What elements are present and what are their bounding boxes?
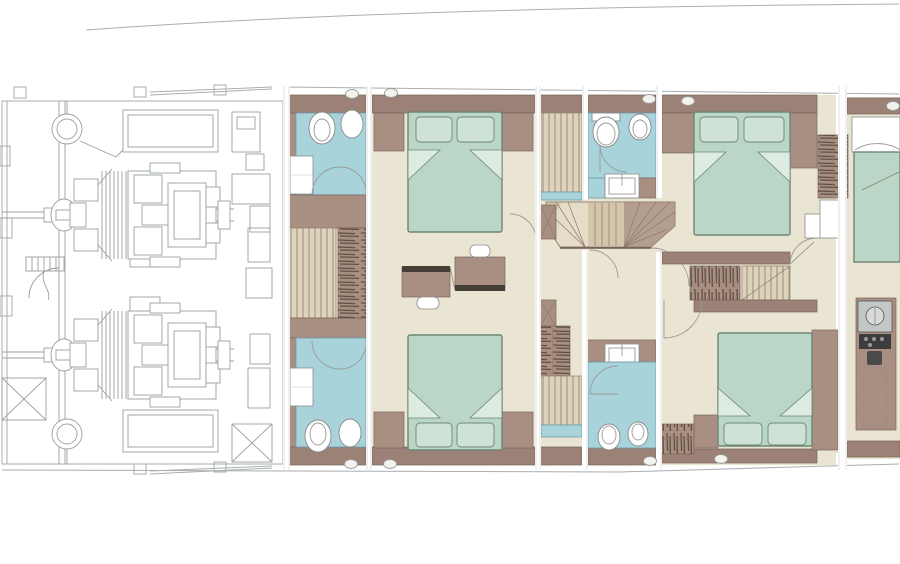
wardrobe [790, 113, 817, 168]
sink-basin [867, 351, 882, 365]
engine-starboard [2, 303, 234, 407]
hanging-wardrobe-vestibule [690, 266, 740, 300]
engine-room [2, 101, 272, 464]
porthole [384, 460, 397, 469]
bidet-icon [628, 422, 648, 446]
engine-port [2, 163, 234, 267]
nightstand [500, 412, 533, 448]
porthole [345, 460, 358, 469]
ladder [26, 257, 64, 300]
staircase-aft [742, 266, 790, 300]
galley-partial [856, 298, 896, 430]
porthole [346, 90, 359, 99]
yacht-lower-deck-plan [0, 0, 900, 564]
nightstand [374, 113, 404, 151]
toilet-icon [309, 112, 335, 144]
stove-icon [859, 334, 891, 349]
nightstand [694, 415, 718, 448]
double-bed-2 [694, 112, 790, 235]
cabin-4-fwd-wall [694, 300, 817, 312]
shower-1 [541, 113, 582, 200]
sink-icon [341, 110, 363, 138]
pillow [457, 423, 494, 447]
porthole [715, 455, 728, 464]
shower-2 [541, 376, 582, 437]
bathroom-3 [289, 338, 366, 452]
shaft [540, 205, 556, 239]
bidet-icon [629, 114, 651, 140]
double-bed-3 [408, 335, 502, 450]
floor-plan-canvas [0, 0, 900, 564]
porthole [385, 89, 398, 98]
water-heater-starboard [52, 419, 82, 464]
nightstand [374, 412, 404, 448]
toilet-icon [305, 420, 331, 452]
sink-icon [339, 419, 361, 447]
toilet-icon [592, 113, 620, 147]
pillow [724, 423, 762, 445]
pillow [700, 117, 738, 142]
stool [417, 297, 439, 309]
toilet-icon [598, 424, 620, 450]
bathroom-4 [587, 340, 656, 450]
pillow [457, 117, 494, 142]
cabin-5-partial [852, 117, 900, 262]
wardrobe [812, 330, 838, 450]
porthole [682, 97, 695, 106]
porthole [644, 457, 657, 466]
pillow [416, 423, 452, 447]
nightstand [662, 113, 694, 153]
fuel-tank-starboard [123, 410, 218, 452]
cabin-2-aft-wall [662, 252, 790, 264]
bathroom-1 [289, 110, 366, 228]
pillow [768, 423, 806, 445]
bathroom-2 [588, 113, 656, 198]
hanging-wardrobe-port [338, 228, 366, 318]
stern-platform [2, 378, 46, 420]
hanging-wardrobe-3 [660, 424, 694, 454]
double-bed-5 [854, 152, 900, 262]
double-bed-4 [718, 333, 812, 446]
double-bed-1 [408, 112, 502, 232]
pillow [744, 117, 784, 142]
stool [470, 245, 490, 257]
water-heater-port [52, 101, 123, 157]
fuel-tank-port [123, 110, 218, 152]
porthole [643, 95, 656, 104]
porthole [887, 102, 900, 111]
pillow [416, 117, 452, 142]
shaft [540, 300, 556, 326]
nightstand [500, 113, 533, 151]
